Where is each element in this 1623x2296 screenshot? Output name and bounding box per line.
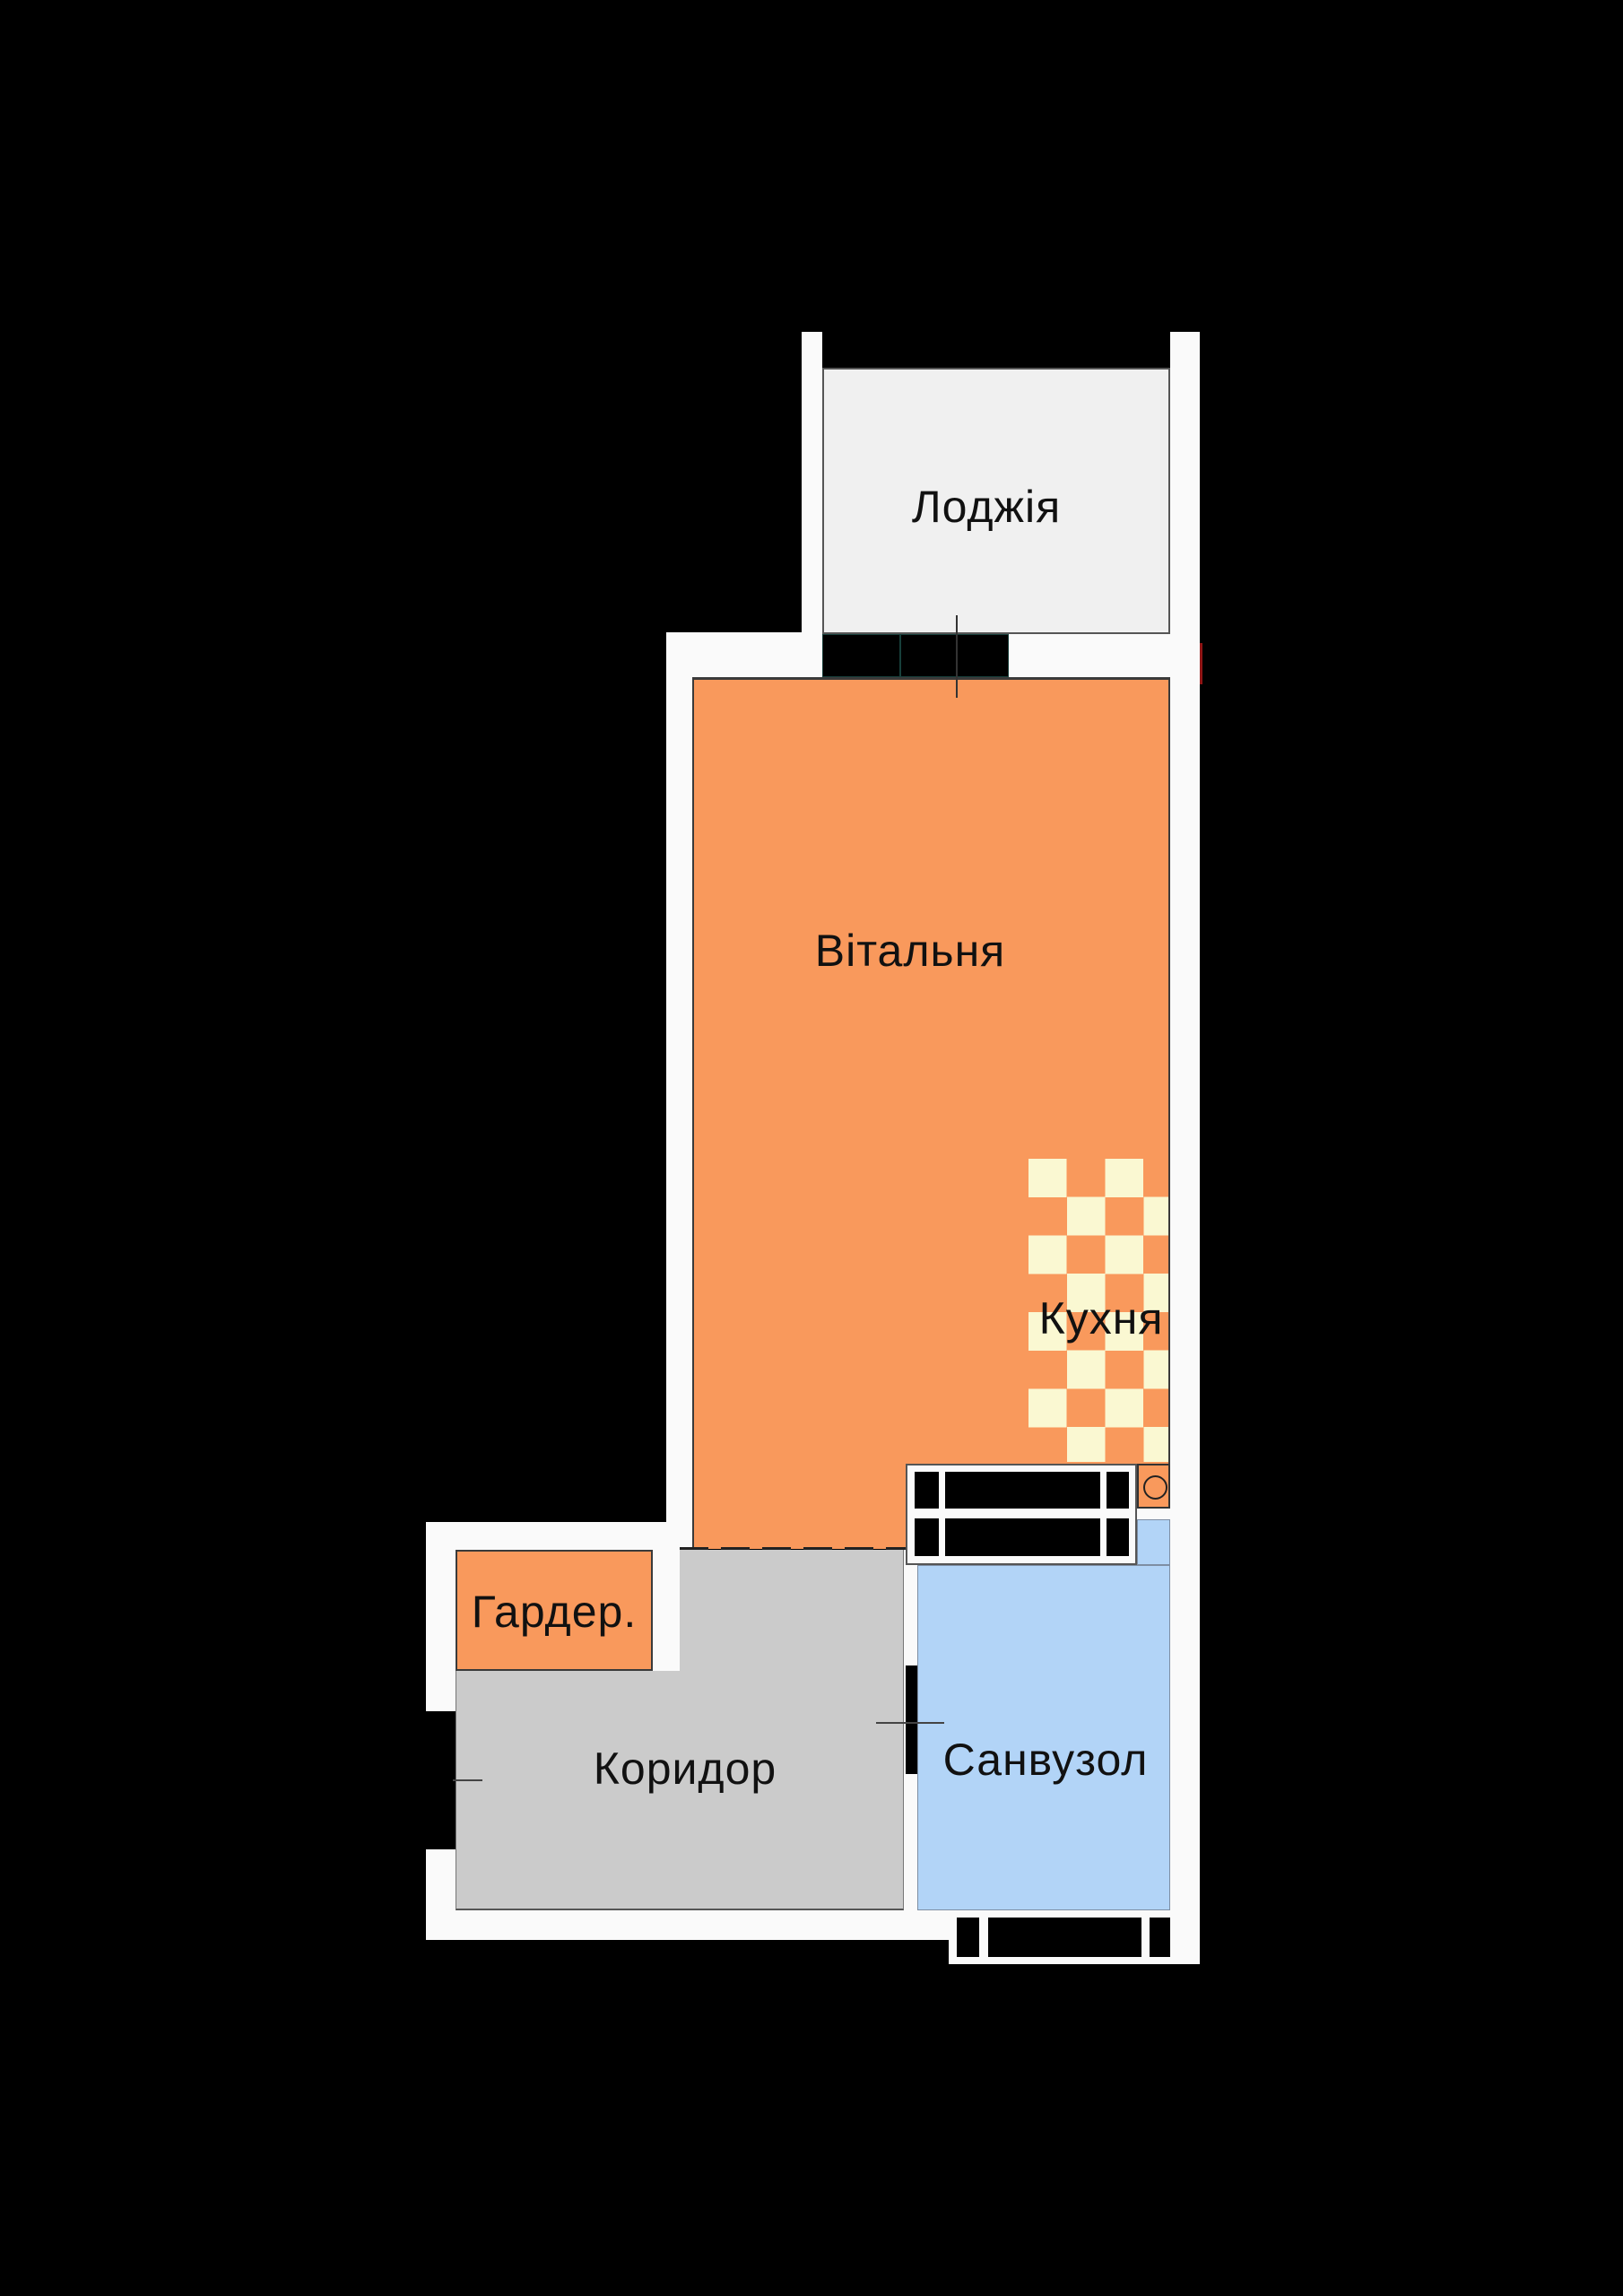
shaft-block: [945, 1472, 1100, 1509]
bottom-vent-block: [1150, 1918, 1170, 1957]
wall-gap-above-bath-notch: [1137, 1509, 1170, 1519]
wall-wardrobe-right: [653, 1550, 680, 1671]
room-label-bathroom: Санвузол: [943, 1734, 1149, 1786]
stove-circle-icon: [1143, 1475, 1167, 1500]
window-divider-line: [899, 634, 901, 677]
shaft-block: [1107, 1472, 1129, 1509]
room-label-living: Вітальня: [815, 925, 1006, 977]
wall-corridor-left-upper: [426, 1550, 456, 1711]
wall-bottom-corridor: [426, 1910, 949, 1940]
shaft-block: [945, 1518, 1100, 1556]
wall-wardrobe-top: [426, 1522, 692, 1550]
red-accent-line: [1200, 643, 1202, 684]
room-living-lower: [692, 1464, 906, 1549]
window-living-loggia: [822, 634, 1009, 677]
floor-plan-canvas: Лоджія Вітальня Кухня Гардер. Коридор Са…: [0, 0, 1623, 2296]
room-label-corridor: Коридор: [594, 1743, 777, 1795]
shaft-block: [915, 1518, 939, 1556]
bottom-vent-block: [957, 1918, 979, 1957]
door-entrance-tick: [453, 1779, 482, 1781]
open-boundary-dashed-line: [680, 1547, 906, 1550]
wall-living-left: [666, 632, 692, 1550]
room-label-loggia: Лоджія: [912, 481, 1061, 533]
window-center-mark: [956, 615, 958, 698]
room-label-wardrobe: Гардер.: [472, 1586, 637, 1638]
room-bathroom-notch: [1137, 1519, 1170, 1565]
door-bathroom: [906, 1665, 917, 1774]
room-corridor: [680, 1550, 904, 1910]
room-label-kitchen: Кухня: [1039, 1292, 1164, 1344]
door-bathroom-tick: [876, 1722, 944, 1724]
shaft-block: [1107, 1518, 1129, 1556]
bottom-vent-block: [988, 1918, 1141, 1957]
shaft-block: [915, 1472, 939, 1509]
wall-loggia-left: [802, 332, 822, 634]
wall-right-outer: [1170, 332, 1200, 1964]
